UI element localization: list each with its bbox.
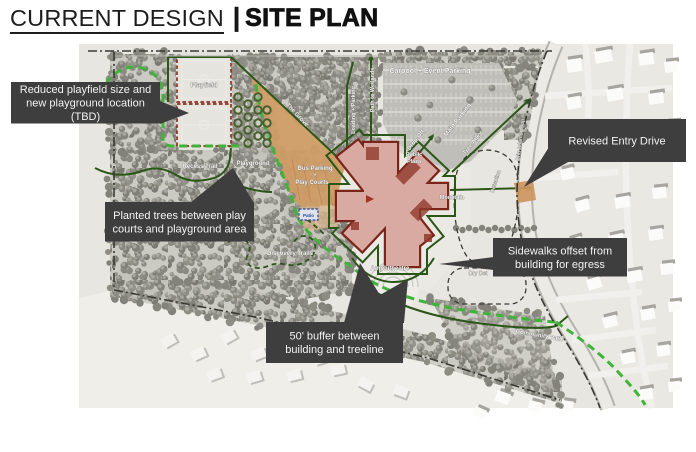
svg-text:Carpool + Event Parking: Carpool + Event Parking: [389, 68, 470, 75]
svg-text:Play Courts: Play Courts: [295, 180, 329, 186]
svg-text:Patio: Patio: [303, 213, 314, 218]
svg-text:+: +: [313, 173, 317, 179]
svg-text:Playfield: Playfield: [191, 82, 218, 89]
svg-text:Bus Parking: Bus Parking: [297, 166, 332, 172]
svg-text:Recess Trail: Recess Trail: [182, 164, 217, 170]
svg-text:building and treeline: building and treeline: [285, 344, 383, 356]
svg-text:Mountain: Mountain: [440, 195, 465, 201]
svg-text:Revised Entry Drive: Revised Entry Drive: [568, 135, 665, 147]
svg-text:Plaza: Plaza: [407, 159, 422, 165]
svg-text:Discovery Trails: Discovery Trails: [267, 251, 314, 257]
svg-text:Playground: Playground: [236, 161, 269, 167]
svg-text:Public: Public: [406, 152, 423, 158]
svg-text:courts and playground area: courts and playground area: [113, 223, 248, 235]
svg-text:Dry Det: Dry Det: [469, 271, 488, 277]
svg-text:Reduced playfield size and: Reduced playfield size and: [20, 84, 151, 96]
svg-text:Amphitheatre: Amphitheatre: [371, 266, 410, 272]
svg-text:Loading + Parking: Loading + Parking: [351, 86, 357, 134]
svg-text:50' buffer between: 50' buffer between: [290, 331, 380, 343]
svg-text:(TBD): (TBD): [71, 111, 100, 123]
svg-text:Sidewalks offset from: Sidewalks offset from: [508, 245, 612, 257]
svg-text:Planted trees between play: Planted trees between play: [113, 210, 246, 222]
svg-text:Path to Wetlands: Path to Wetlands: [370, 68, 376, 113]
svg-text:building for egress: building for egress: [515, 259, 605, 271]
svg-text:new playground location: new playground location: [26, 98, 145, 110]
